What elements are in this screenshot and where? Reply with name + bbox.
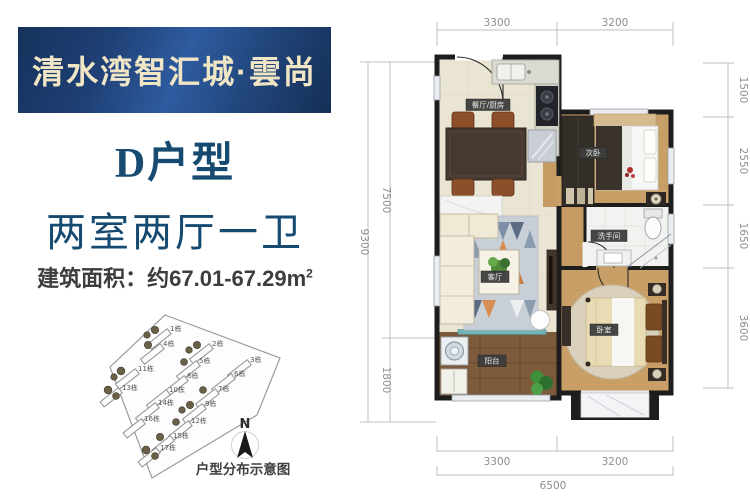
dim-top-2: 3200 [602, 17, 629, 29]
living-window [434, 256, 440, 306]
svg-text:1栋: 1栋 [170, 324, 181, 333]
svg-text:6栋: 6栋 [234, 369, 245, 378]
window-ledge [594, 114, 656, 126]
dim-bottom-2: 3200 [602, 456, 629, 468]
dim-right-1: 1500 [737, 77, 749, 104]
sofa-chaise [440, 236, 474, 324]
bathroom-window [668, 214, 674, 244]
svg-text:11栋: 11栋 [138, 364, 154, 373]
svg-text:8栋: 8栋 [187, 371, 198, 380]
unit-layout-title: 两室两厅一卫 [0, 200, 350, 258]
svg-text:15栋: 15栋 [173, 431, 189, 440]
svg-text:9栋: 9栋 [205, 399, 216, 408]
dining-chair [452, 112, 474, 129]
balcony-window [452, 395, 550, 401]
svg-text:13栋: 13栋 [122, 383, 138, 392]
label-balcony: 阳台 [478, 355, 506, 367]
dim-right-4: 3600 [737, 315, 749, 342]
bathroom-door-opening [583, 242, 588, 267]
svg-text:餐厅/厨房: 餐厅/厨房 [472, 99, 505, 109]
flower-decor-icon [627, 167, 633, 173]
bedroom2-side-window [668, 148, 674, 184]
svg-text:7栋: 7栋 [218, 384, 229, 393]
faucet-icon [527, 70, 531, 74]
label-living: 客厅 [481, 271, 509, 283]
floor-plan: 3300 3200 1500 2550 1650 3600 9300 7500 … [340, 10, 750, 498]
svg-text:卧室: 卧室 [597, 324, 612, 334]
dim-left-total: 9300 [358, 229, 370, 256]
dim-right-3: 1650 [737, 223, 749, 250]
unit-area-exponent: 2 [306, 267, 313, 281]
kitchen-window [434, 76, 440, 100]
unit-area-value: 建筑面积：约67.01-67.29m [37, 266, 306, 291]
bay-window [571, 391, 659, 421]
dresser [562, 306, 571, 346]
dim-left-2: 1800 [380, 367, 392, 394]
lamp-icon [653, 285, 662, 294]
north-label: N [240, 417, 251, 432]
hallway-floor-2 [559, 207, 585, 268]
headboard [662, 300, 667, 364]
unit-area-text: 建筑面积：约67.01-67.29m2 [0, 261, 350, 293]
svg-text:洗手间: 洗手间 [598, 230, 621, 240]
project-name: 清水湾智汇城·雲尚 [32, 47, 317, 93]
svg-text:5栋: 5栋 [199, 356, 210, 365]
dim-right-2: 2550 [737, 148, 749, 175]
north-arrow-icon [237, 431, 253, 458]
label-bathroom: 洗手间 [591, 230, 627, 242]
svg-text:3栋: 3栋 [250, 355, 261, 364]
svg-text:阳台: 阳台 [485, 355, 500, 365]
svg-text:次卧: 次卧 [586, 147, 601, 157]
dim-top-1: 3300 [484, 17, 511, 29]
pillow [646, 336, 662, 362]
site-plan: 1栋 2栋 3栋 4栋 5栋 6栋 7栋 8栋 9栋 10栋 11栋 12栋 1… [95, 305, 345, 495]
svg-text:14栋: 14栋 [158, 398, 174, 407]
toilet [645, 217, 661, 239]
side-stool [531, 311, 550, 330]
pillow [646, 304, 662, 330]
bedroom2-door-opening [556, 176, 563, 206]
svg-text:17栋: 17栋 [160, 443, 176, 452]
tv [549, 256, 553, 304]
pillow [644, 130, 656, 154]
project-banner: 清水湾智汇城·雲尚 [18, 27, 331, 113]
dining-chair [492, 112, 514, 129]
shower-drain-icon [654, 256, 657, 259]
svg-text:12栋: 12栋 [191, 416, 207, 425]
svg-text:4栋: 4栋 [163, 339, 174, 348]
dining-chair [452, 179, 474, 196]
dining-chair [492, 179, 514, 196]
site-boundary [110, 315, 280, 478]
unit-type-title: D户型 [0, 129, 350, 190]
dim-bottom-1: 3300 [484, 456, 511, 468]
pillow [644, 158, 656, 182]
label-second-bedroom: 次卧 [579, 147, 607, 159]
dim-left-1: 7500 [380, 187, 392, 214]
label-dining-kitchen: 餐厅/厨房 [466, 99, 510, 111]
svg-text:2栋: 2栋 [212, 339, 223, 348]
site-plan-caption: 户型分布示意图 [196, 461, 291, 478]
svg-text:10栋: 10栋 [169, 385, 185, 394]
dining-table [446, 128, 526, 180]
label-master-bedroom: 卧室 [590, 324, 618, 336]
dim-bottom-total: 6500 [540, 480, 567, 492]
lamp-icon [653, 370, 662, 379]
svg-text:16栋: 16栋 [144, 414, 160, 423]
svg-text:客厅: 客厅 [488, 271, 503, 281]
